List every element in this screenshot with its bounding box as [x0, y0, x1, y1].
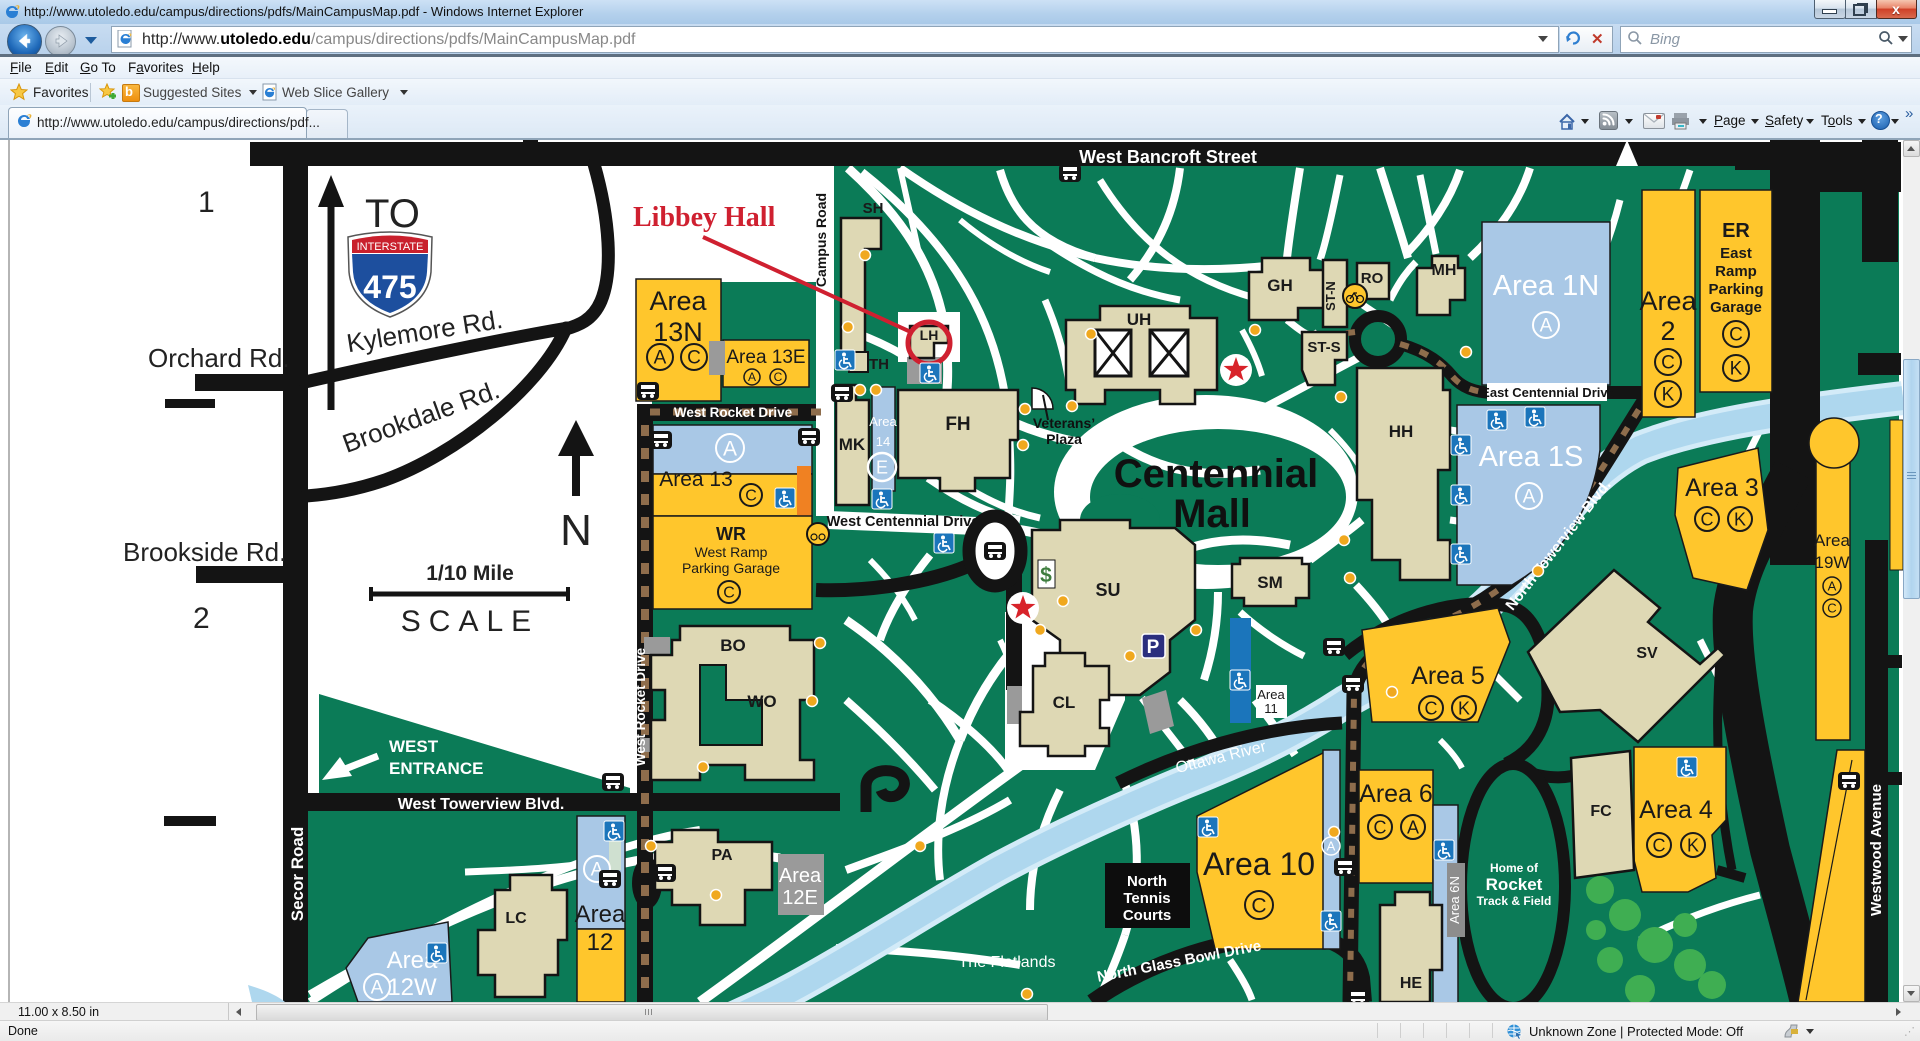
- svg-text:ENTRANCE: ENTRANCE: [389, 759, 483, 778]
- svg-text:A: A: [1327, 839, 1336, 854]
- svg-text:Parking Garage: Parking Garage: [682, 560, 780, 576]
- svg-text:K: K: [1734, 509, 1746, 529]
- svg-text:2: 2: [1660, 316, 1675, 346]
- svg-text:A: A: [1540, 316, 1553, 337]
- svg-text:Centennial: Centennial: [1114, 452, 1318, 496]
- svg-text:INTERSTATE: INTERSTATE: [357, 241, 424, 253]
- svg-text:C: C: [1425, 698, 1438, 718]
- svg-text:WR: WR: [716, 524, 746, 544]
- svg-text:West Rocket Drive: West Rocket Drive: [674, 405, 793, 420]
- svg-text:East Centennial Drive: East Centennial Drive: [1481, 385, 1615, 400]
- svg-text:1: 1: [198, 186, 215, 219]
- svg-text:C: C: [1827, 601, 1836, 616]
- svg-text:Courts: Courts: [1123, 907, 1171, 924]
- svg-text:C: C: [1251, 894, 1266, 917]
- svg-text:Tennis: Tennis: [1123, 890, 1170, 907]
- svg-text:Plaza: Plaza: [1046, 431, 1082, 447]
- svg-text:The Flatlands: The Flatlands: [959, 954, 1056, 971]
- svg-text:ST-S: ST-S: [1307, 339, 1340, 356]
- svg-text:SH: SH: [863, 200, 884, 217]
- svg-text:Area 10: Area 10: [1203, 846, 1315, 882]
- svg-text:C: C: [1701, 509, 1714, 529]
- svg-text:C: C: [745, 488, 757, 505]
- svg-text:475: 475: [363, 269, 416, 305]
- svg-text:Campus Road: Campus Road: [813, 193, 829, 287]
- svg-text:BO: BO: [720, 636, 746, 655]
- svg-text:CL: CL: [1053, 693, 1076, 712]
- svg-text:Track & Field: Track & Field: [1477, 894, 1552, 908]
- svg-text:North: North: [1127, 873, 1167, 890]
- svg-text:A: A: [1828, 579, 1837, 594]
- svg-text:SU: SU: [1095, 580, 1120, 600]
- svg-text:TH: TH: [869, 356, 889, 373]
- svg-text:12: 12: [587, 929, 614, 956]
- svg-text:Area 6: Area 6: [1359, 780, 1433, 808]
- svg-text:West Centennial Drive: West Centennial Drive: [827, 514, 980, 530]
- svg-text:WO: WO: [747, 692, 776, 711]
- svg-text:C: C: [774, 370, 783, 384]
- svg-text:RO: RO: [1361, 270, 1384, 287]
- svg-text:12W: 12W: [387, 974, 437, 1001]
- svg-text:Area: Area: [1257, 687, 1285, 702]
- svg-text:K: K: [1730, 359, 1743, 380]
- svg-text:FC: FC: [1590, 803, 1612, 820]
- svg-text:Rocket: Rocket: [1486, 875, 1543, 894]
- svg-text:13N: 13N: [653, 317, 703, 347]
- svg-text:Mall: Mall: [1173, 492, 1251, 536]
- svg-text:West Towerview Blvd.: West Towerview Blvd.: [398, 796, 565, 813]
- svg-text:Brookside Rd.: Brookside Rd.: [123, 537, 286, 567]
- svg-text:LH: LH: [920, 327, 939, 343]
- svg-text:SM: SM: [1257, 573, 1283, 592]
- svg-text:11: 11: [1264, 701, 1278, 716]
- svg-text:LC: LC: [505, 910, 527, 927]
- svg-text:A: A: [1523, 487, 1536, 508]
- svg-text:A: A: [654, 348, 667, 369]
- svg-text:HE: HE: [1400, 975, 1423, 992]
- svg-text:K: K: [1687, 835, 1699, 855]
- svg-text:GH: GH: [1267, 276, 1293, 295]
- svg-text:A: A: [1407, 817, 1419, 837]
- svg-text:1/10 Mile: 1/10 Mile: [426, 562, 514, 585]
- svg-text:2: 2: [193, 602, 210, 635]
- svg-text:West Bancroft Street: West Bancroft Street: [1079, 147, 1257, 167]
- svg-text:K: K: [1662, 385, 1675, 406]
- svg-text:WEST: WEST: [389, 737, 439, 756]
- svg-text:Area 6N: Area 6N: [1447, 876, 1462, 924]
- svg-text:ER: ER: [1722, 220, 1750, 242]
- svg-text:Westwood Avenue: Westwood Avenue: [1868, 784, 1885, 916]
- svg-text:A: A: [748, 370, 756, 384]
- svg-text:Parking: Parking: [1708, 281, 1763, 298]
- svg-text:Area 13: Area 13: [659, 468, 733, 491]
- svg-text:FH: FH: [945, 414, 970, 435]
- svg-text:E: E: [876, 457, 888, 477]
- svg-text:TO: TO: [365, 192, 420, 236]
- svg-text:C: C: [687, 348, 701, 369]
- svg-text:P: P: [1147, 637, 1160, 658]
- svg-text:K: K: [1458, 698, 1470, 718]
- svg-text:Area: Area: [575, 901, 626, 928]
- svg-text:C: C: [1374, 817, 1387, 837]
- svg-text:Area 3: Area 3: [1685, 474, 1759, 502]
- svg-text:PA: PA: [711, 847, 732, 864]
- svg-text:Ramp: Ramp: [1715, 263, 1757, 280]
- svg-text:HH: HH: [1389, 422, 1414, 441]
- svg-text:12E: 12E: [782, 887, 818, 909]
- svg-text:Area: Area: [779, 865, 822, 887]
- svg-text:Home of: Home of: [1490, 861, 1539, 875]
- svg-text:MH: MH: [1432, 262, 1457, 279]
- svg-text:ST-N: ST-N: [1323, 281, 1338, 311]
- svg-text:C: C: [1653, 835, 1666, 855]
- svg-text:Orchard Rd.: Orchard Rd.: [148, 343, 290, 373]
- svg-text:Veterans’: Veterans’: [1033, 415, 1095, 431]
- svg-text:$: $: [1040, 564, 1052, 587]
- svg-text:SV: SV: [1636, 645, 1658, 662]
- svg-text:Area 1N: Area 1N: [1493, 270, 1599, 302]
- svg-text:C: C: [1661, 353, 1675, 374]
- svg-text:Area 4: Area 4: [1639, 796, 1713, 824]
- svg-text:West Ramp: West Ramp: [695, 544, 768, 560]
- svg-text:19W: 19W: [1815, 553, 1850, 572]
- svg-text:MK: MK: [839, 435, 866, 454]
- svg-text:West Rocket Drive: West Rocket Drive: [633, 647, 648, 766]
- svg-text:A: A: [723, 437, 737, 460]
- svg-text:Libbey Hall: Libbey Hall: [633, 202, 776, 233]
- svg-text:Area: Area: [649, 286, 707, 316]
- svg-text:East: East: [1720, 245, 1752, 262]
- svg-text:Area 13E: Area 13E: [726, 347, 805, 368]
- svg-text:UH: UH: [1127, 310, 1152, 329]
- svg-text:Garage: Garage: [1710, 299, 1762, 316]
- svg-text:C: C: [723, 585, 735, 602]
- svg-text:SCALE: SCALE: [401, 605, 539, 638]
- svg-text:Area: Area: [869, 414, 897, 429]
- svg-text:C: C: [1729, 325, 1743, 346]
- svg-text:Area 1S: Area 1S: [1479, 441, 1584, 473]
- svg-text:Area: Area: [1639, 286, 1697, 316]
- svg-text:A: A: [371, 978, 384, 999]
- svg-text:Secor Road: Secor Road: [288, 827, 307, 921]
- svg-text:Area 5: Area 5: [1411, 662, 1485, 690]
- svg-text:N: N: [560, 506, 592, 555]
- svg-text:Area: Area: [1814, 531, 1850, 550]
- svg-text:14: 14: [876, 434, 890, 449]
